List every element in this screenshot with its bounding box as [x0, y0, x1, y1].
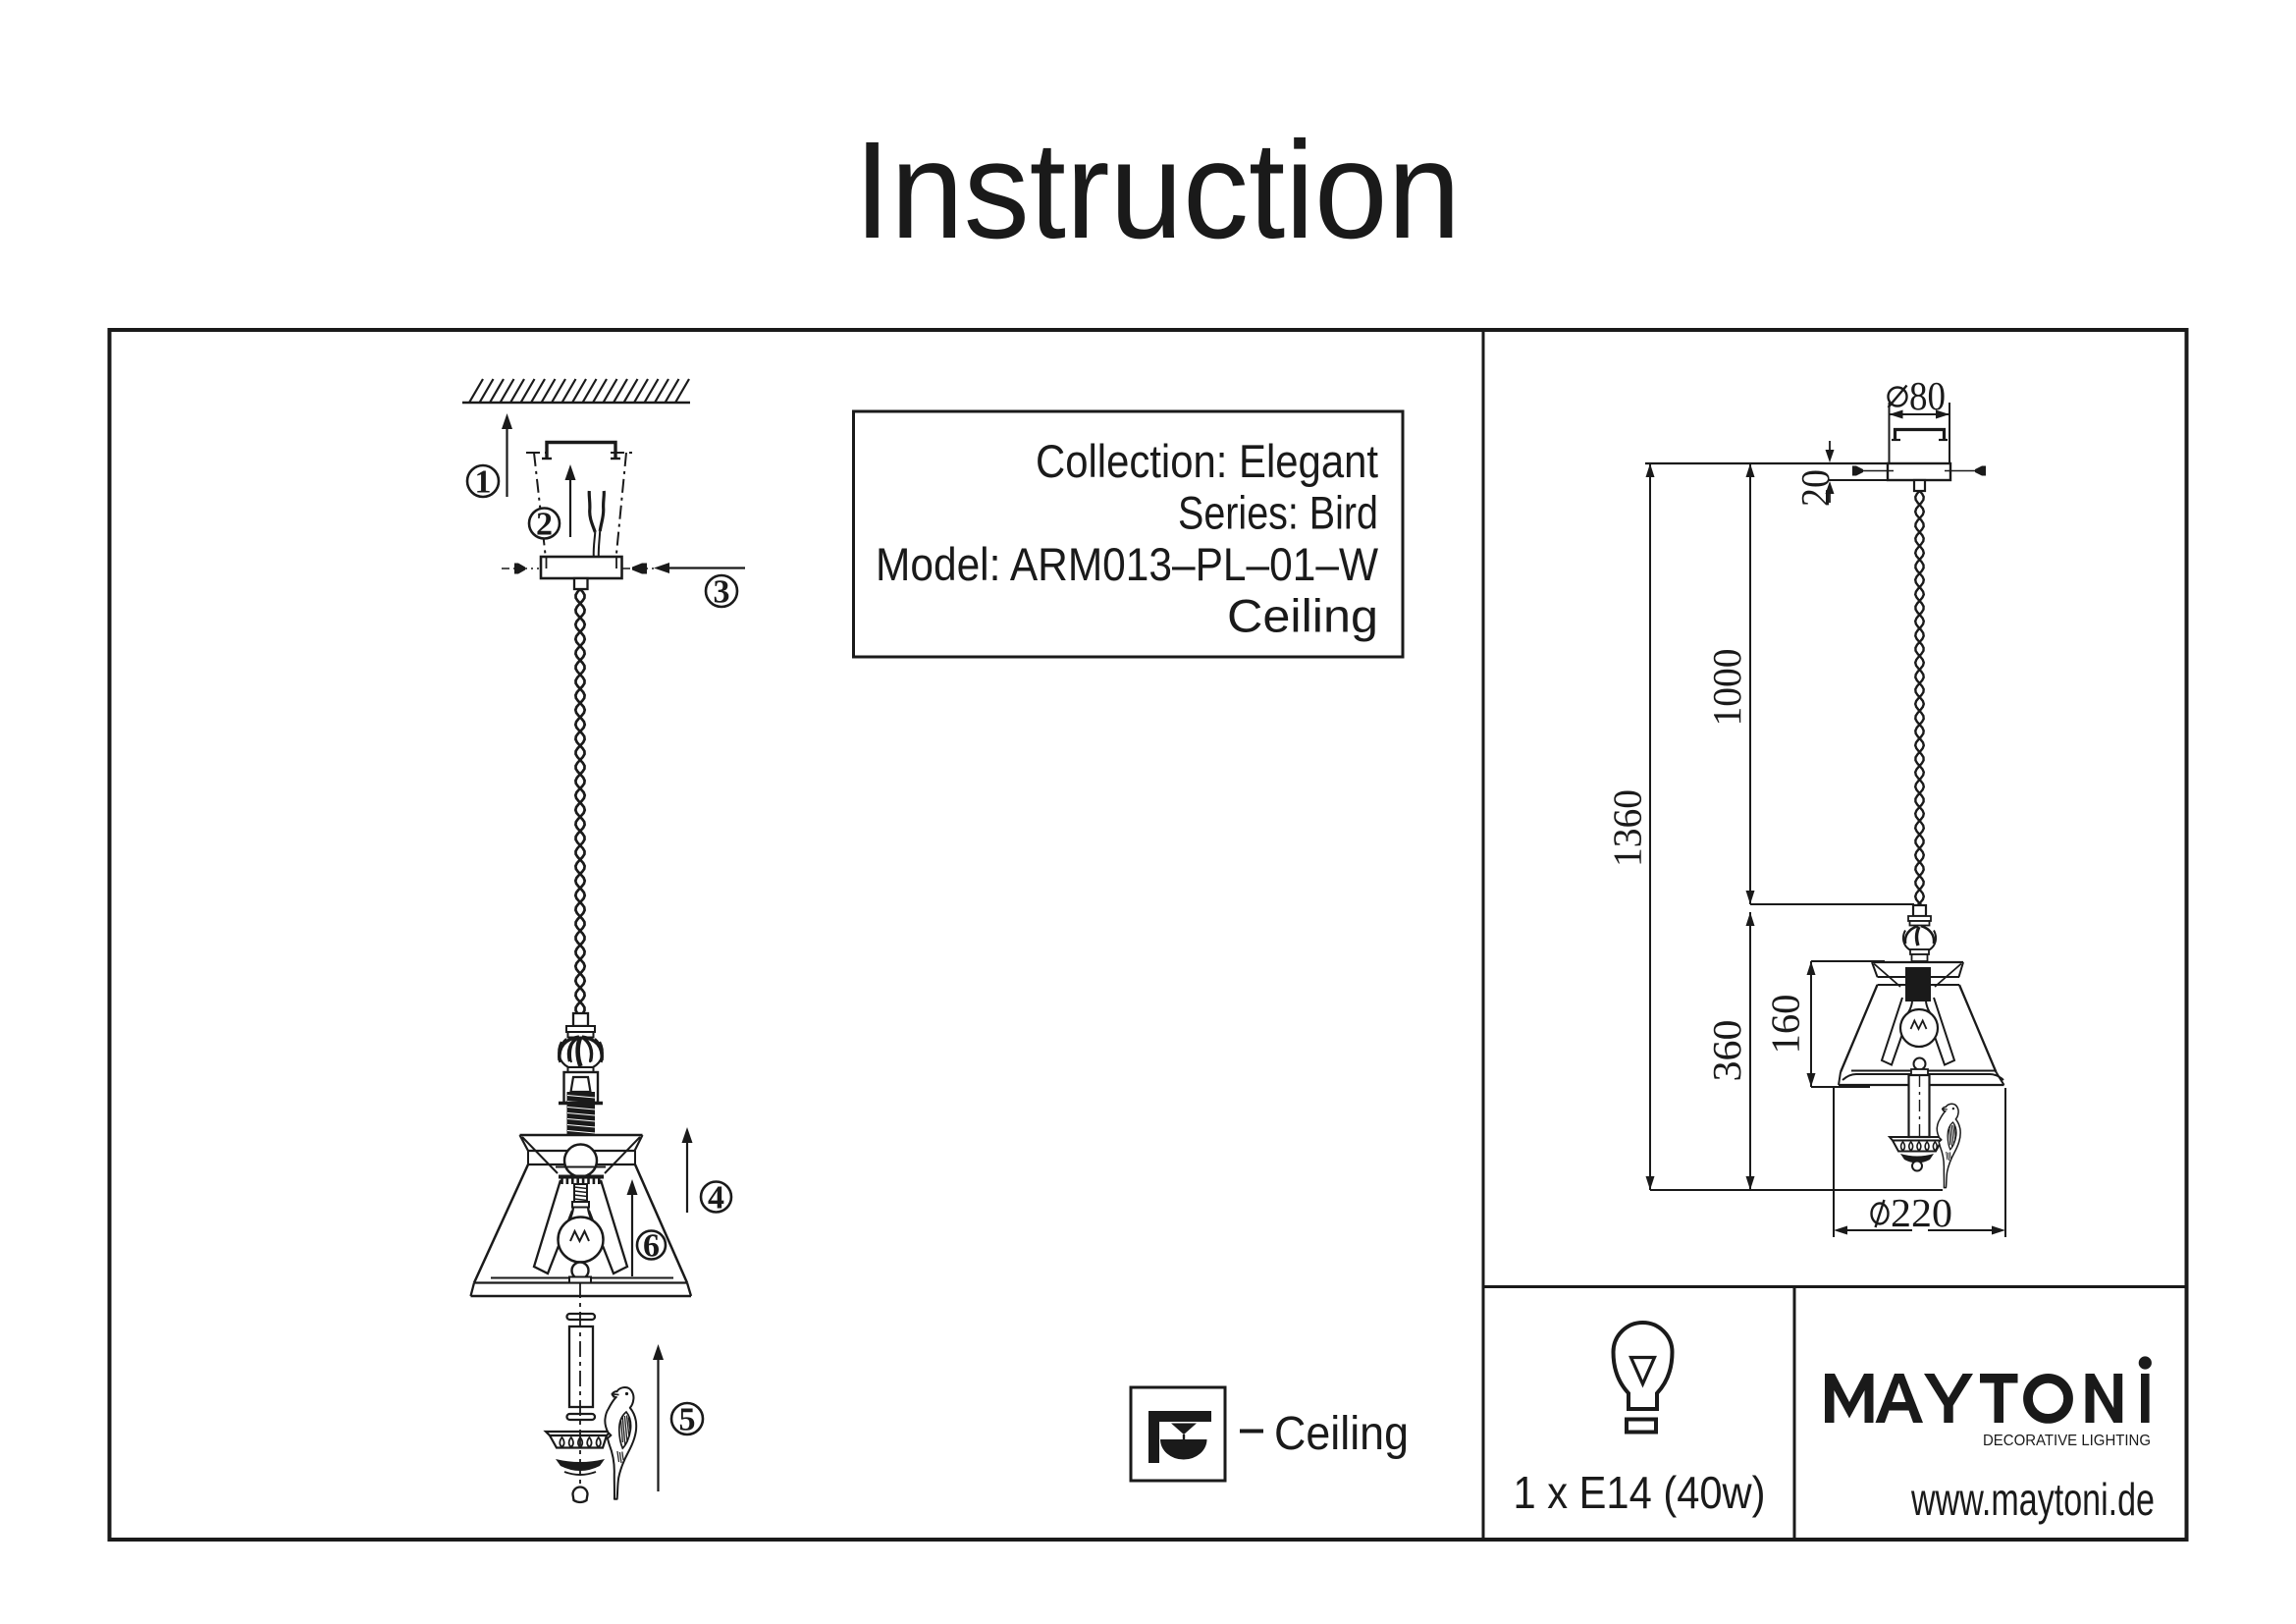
- svg-text:1360: 1360: [1605, 789, 1650, 867]
- svg-text:Ceiling: Ceiling: [1274, 1408, 1409, 1460]
- svg-text:Ceiling: Ceiling: [1227, 590, 1378, 642]
- svg-text:3: 3: [714, 574, 730, 611]
- svg-text:1 x E14 (40w): 1 x E14 (40w): [1514, 1467, 1766, 1518]
- svg-text:1000: 1000: [1704, 649, 1749, 727]
- svg-text:DECORATIVE LIGHTING: DECORATIVE LIGHTING: [1983, 1433, 2151, 1449]
- svg-text:5: 5: [679, 1402, 696, 1438]
- svg-text:360: 360: [1704, 1020, 1749, 1082]
- svg-text:Instruction: Instruction: [854, 112, 1461, 267]
- svg-text:Model: ARM013–PL–01–W: Model: ARM013–PL–01–W: [876, 538, 1379, 590]
- svg-text:20: 20: [1792, 469, 1838, 507]
- svg-text:www.maytoni.de: www.maytoni.de: [1910, 1474, 2155, 1525]
- svg-text:160: 160: [1763, 995, 1808, 1055]
- svg-text:220: 220: [1891, 1190, 1952, 1235]
- svg-text:Collection: Elegant: Collection: Elegant: [1036, 435, 1378, 487]
- svg-text:4: 4: [708, 1180, 724, 1217]
- svg-text:1: 1: [475, 464, 492, 501]
- svg-text:2: 2: [536, 507, 553, 543]
- svg-text:Series: Bird: Series: Bird: [1178, 487, 1378, 539]
- svg-text:6: 6: [643, 1228, 660, 1265]
